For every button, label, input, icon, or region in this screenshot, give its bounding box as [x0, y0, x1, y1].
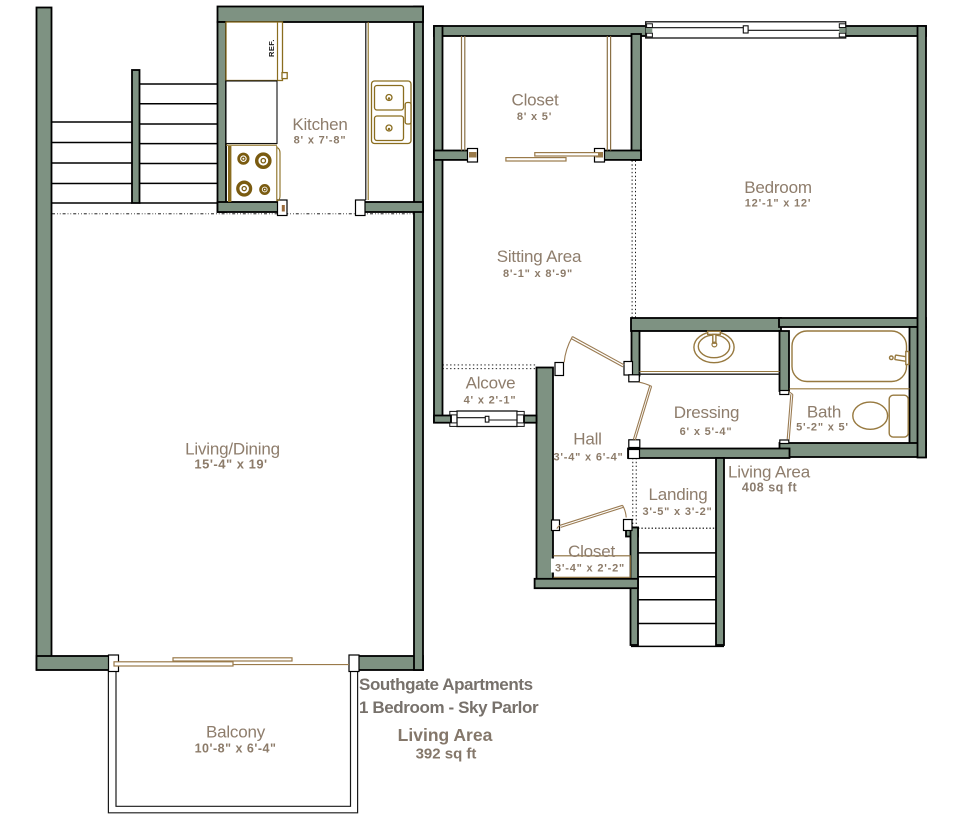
svg-text:Southgate Apartments: Southgate Apartments — [359, 675, 533, 694]
svg-text:3'-4" x 2'-2": 3'-4" x 2'-2" — [555, 563, 625, 575]
svg-text:6' x 5'-4": 6' x 5'-4" — [680, 426, 733, 438]
svg-text:Alcove: Alcove — [466, 374, 516, 393]
svg-text:4' x 2'-1": 4' x 2'-1" — [464, 395, 517, 407]
svg-text:Balcony: Balcony — [206, 723, 266, 742]
svg-text:Closet: Closet — [512, 91, 559, 110]
svg-text:Bedroom: Bedroom — [744, 178, 812, 197]
svg-text:392 sq ft: 392 sq ft — [416, 746, 477, 763]
svg-text:Kitchen: Kitchen — [292, 115, 347, 134]
svg-text:Living Area: Living Area — [728, 463, 811, 482]
svg-text:Hall: Hall — [573, 430, 602, 449]
svg-text:8'-1" x 8'-9": 8'-1" x 8'-9" — [503, 268, 573, 280]
svg-text:Sitting Area: Sitting Area — [497, 247, 582, 266]
svg-text:8' x 5': 8' x 5' — [517, 111, 552, 123]
svg-text:408 sq ft: 408 sq ft — [742, 481, 798, 495]
svg-text:REF.: REF. — [267, 39, 276, 57]
svg-text:12'-1" x 12': 12'-1" x 12' — [745, 198, 812, 210]
svg-text:3'-4" x 6'-4": 3'-4" x 6'-4" — [553, 452, 623, 464]
svg-text:Dressing: Dressing — [674, 403, 739, 422]
svg-text:8' x 7'-8": 8' x 7'-8" — [294, 135, 347, 147]
svg-text:15'-4" x 19': 15'-4" x 19' — [194, 457, 267, 472]
svg-text:1 Bedroom - Sky Parlor: 1 Bedroom - Sky Parlor — [359, 698, 539, 717]
svg-text:3'-5" x 3'-2": 3'-5" x 3'-2" — [642, 506, 712, 518]
svg-text:10'-8" x 6'-4": 10'-8" x 6'-4" — [195, 742, 277, 756]
svg-text:5'-2" x 5': 5'-2" x 5' — [796, 422, 849, 434]
svg-text:Living Area: Living Area — [398, 725, 493, 745]
svg-text:Landing: Landing — [648, 485, 707, 504]
svg-text:Closet: Closet — [568, 542, 615, 561]
svg-text:Bath: Bath — [807, 403, 841, 422]
